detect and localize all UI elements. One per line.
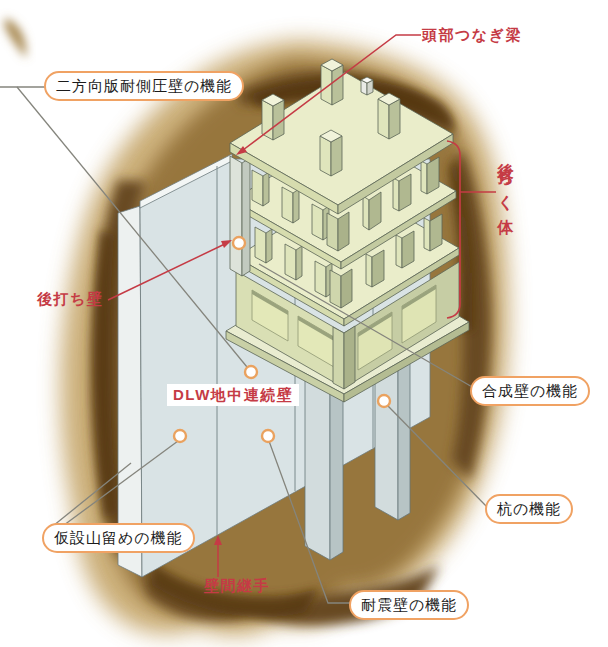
label-post-cast-wall: 後打ち壁 <box>37 290 103 308</box>
label-pill-two-way-wall: 二方向版耐側圧壁の機能 <box>44 71 244 101</box>
label-wall-joint: 壁間継手 <box>204 577 270 595</box>
pile-head-cube <box>361 77 373 95</box>
label-dlw-wall: DLW地中連続壁 <box>167 384 299 406</box>
wall-end-face <box>118 206 142 577</box>
label-pill-composite-wall: 合成壁の機能 <box>470 376 590 406</box>
diagram-canvas: 頭部つなぎ梁 二方向版耐側圧壁の機能 後打ちく体 後打ち壁 DLW地中連続壁 合… <box>0 0 608 647</box>
label-pill-temp-retaining: 仮設山留めの機能 <box>42 523 195 553</box>
label-post-cast-body: 後打ちく体 <box>497 150 515 212</box>
label-pill-seismic-wall: 耐震壁の機能 <box>349 590 469 620</box>
post-cast-wall-face <box>230 156 250 276</box>
label-top-beam: 頭部つなぎ梁 <box>422 26 522 44</box>
label-pill-pile: 杭の機能 <box>485 494 573 524</box>
